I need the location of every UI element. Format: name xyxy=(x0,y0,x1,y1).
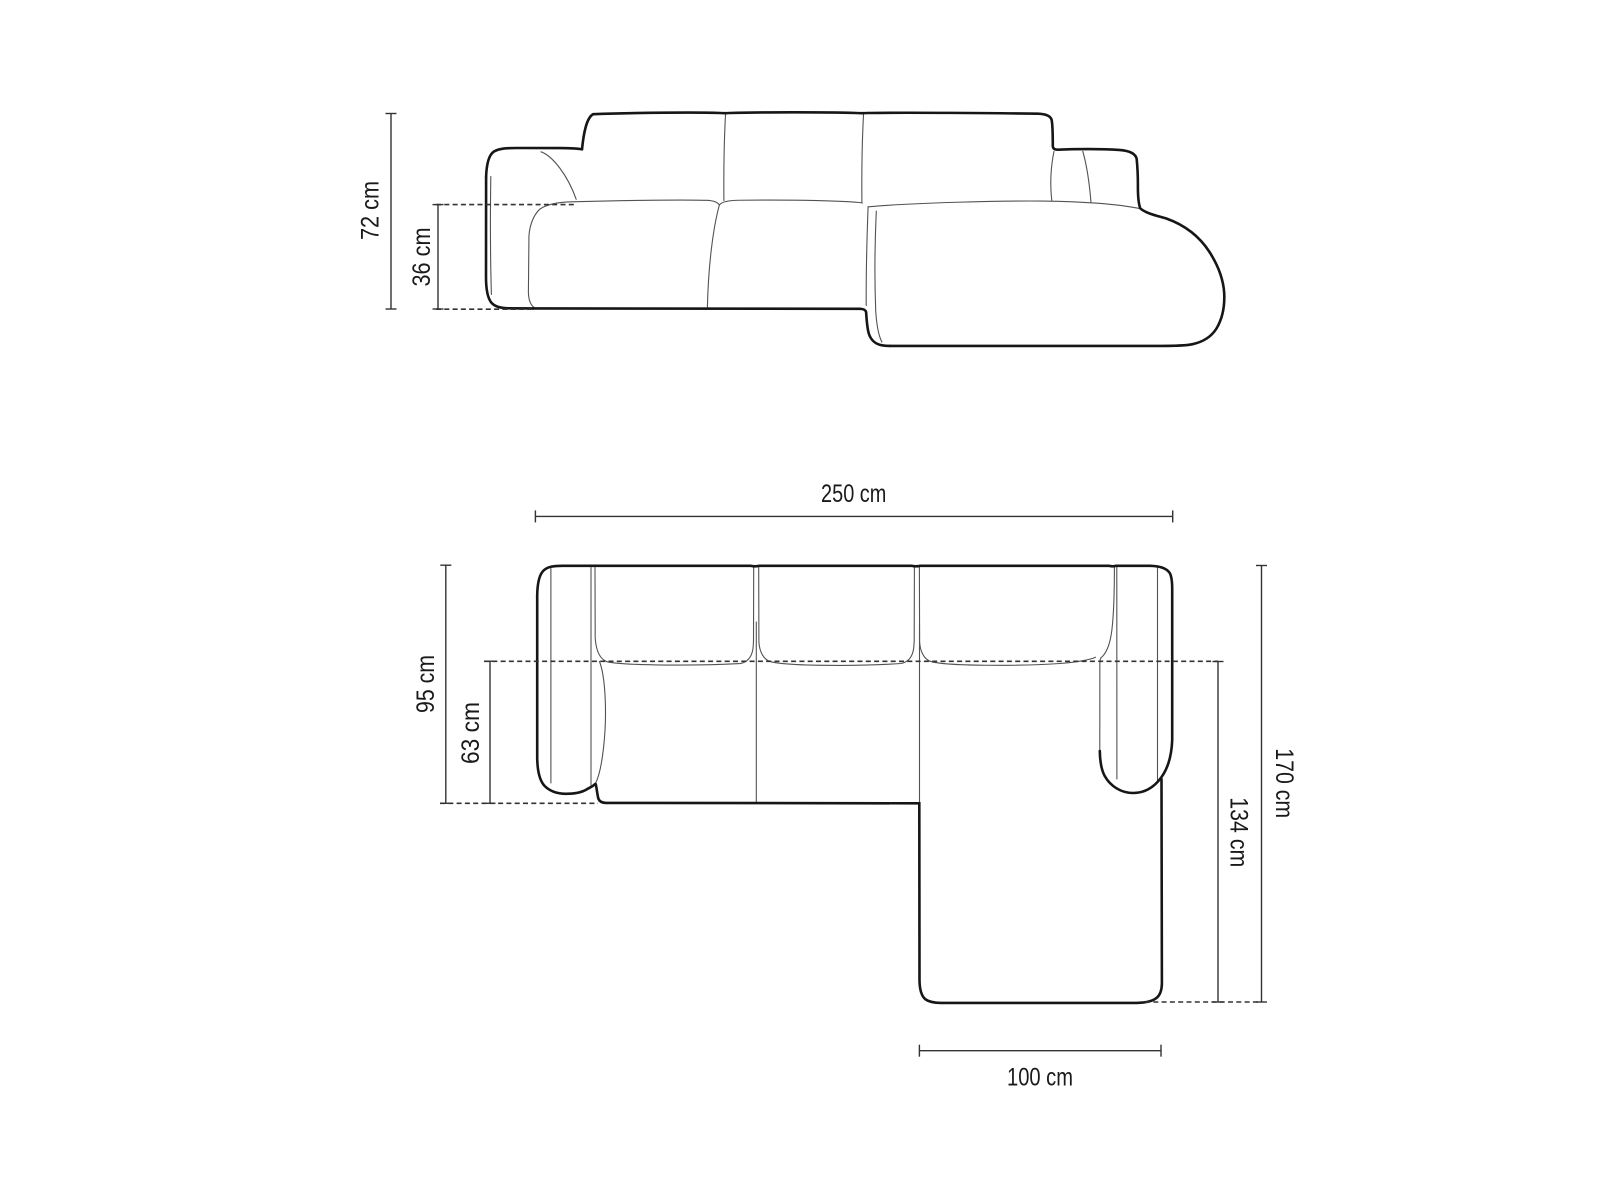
svg-text:72 cm: 72 cm xyxy=(357,181,385,240)
svg-text:36 cm: 36 cm xyxy=(408,228,436,287)
svg-text:95 cm: 95 cm xyxy=(412,655,440,713)
svg-text:134 cm: 134 cm xyxy=(1225,797,1253,867)
svg-text:63 cm: 63 cm xyxy=(457,702,485,764)
svg-text:250 cm: 250 cm xyxy=(821,480,886,508)
svg-text:170 cm: 170 cm xyxy=(1270,748,1298,818)
svg-text:100 cm: 100 cm xyxy=(1007,1064,1073,1092)
